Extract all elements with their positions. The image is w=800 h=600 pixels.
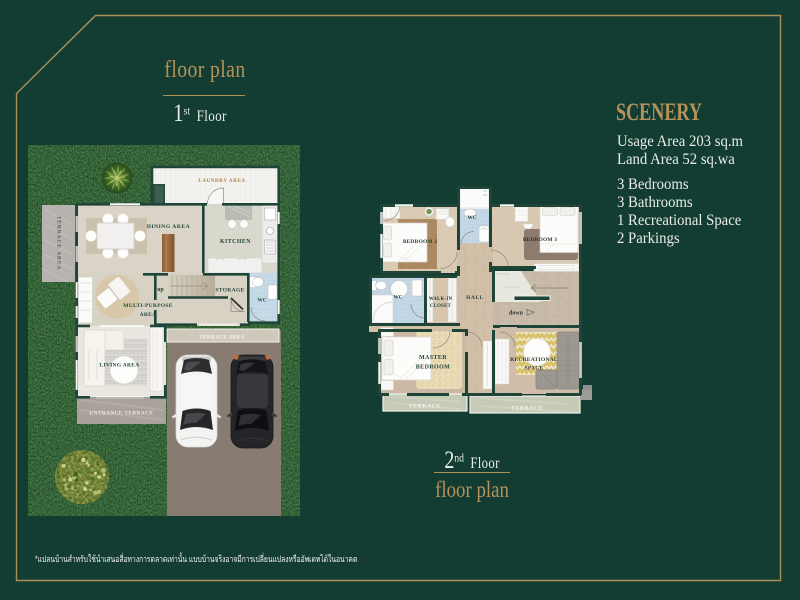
svg-text:TERRACE: TERRACE (511, 406, 543, 412)
svg-text:down: down (509, 311, 524, 317)
svg-text:STORAGE: STORAGE (215, 288, 244, 294)
svg-text:LIVING AREA: LIVING AREA (99, 363, 139, 369)
svg-text:KITCHEN: KITCHEN (220, 239, 251, 245)
svg-text:SPACE: SPACE (525, 366, 544, 372)
svg-text:BEDROOM 3: BEDROOM 3 (523, 237, 557, 243)
svg-text:RECREATIONAL: RECREATIONAL (510, 357, 558, 363)
svg-text:WC: WC (258, 298, 267, 304)
svg-text:LAUNDRY AREA: LAUNDRY AREA (198, 178, 245, 184)
svg-text:WC: WC (468, 215, 477, 221)
svg-text:BEDROOM: BEDROOM (416, 365, 450, 371)
svg-text:BEDROOM 2: BEDROOM 2 (403, 239, 437, 245)
svg-text:TERRACE AREA: TERRACE AREA (199, 336, 245, 341)
svg-text:ENTRANCE TERRACE: ENTRANCE TERRACE (90, 411, 154, 417)
svg-text:up: up (157, 287, 163, 293)
svg-text:MASTER: MASTER (419, 355, 447, 361)
svg-text:DINING AREA: DINING AREA (147, 224, 190, 230)
svg-text:TERRACE AREA: TERRACE AREA (55, 216, 61, 271)
svg-text:AREA: AREA (140, 312, 157, 318)
svg-text:WC: WC (394, 295, 403, 301)
svg-text:HALL: HALL (466, 295, 484, 301)
svg-text:TERRACE: TERRACE (409, 404, 441, 410)
svg-text:CLOSET: CLOSET (430, 304, 452, 309)
svg-text:WALK-IN: WALK-IN (429, 297, 453, 302)
svg-text:MULTI-PURPOSE: MULTI-PURPOSE (123, 303, 173, 309)
